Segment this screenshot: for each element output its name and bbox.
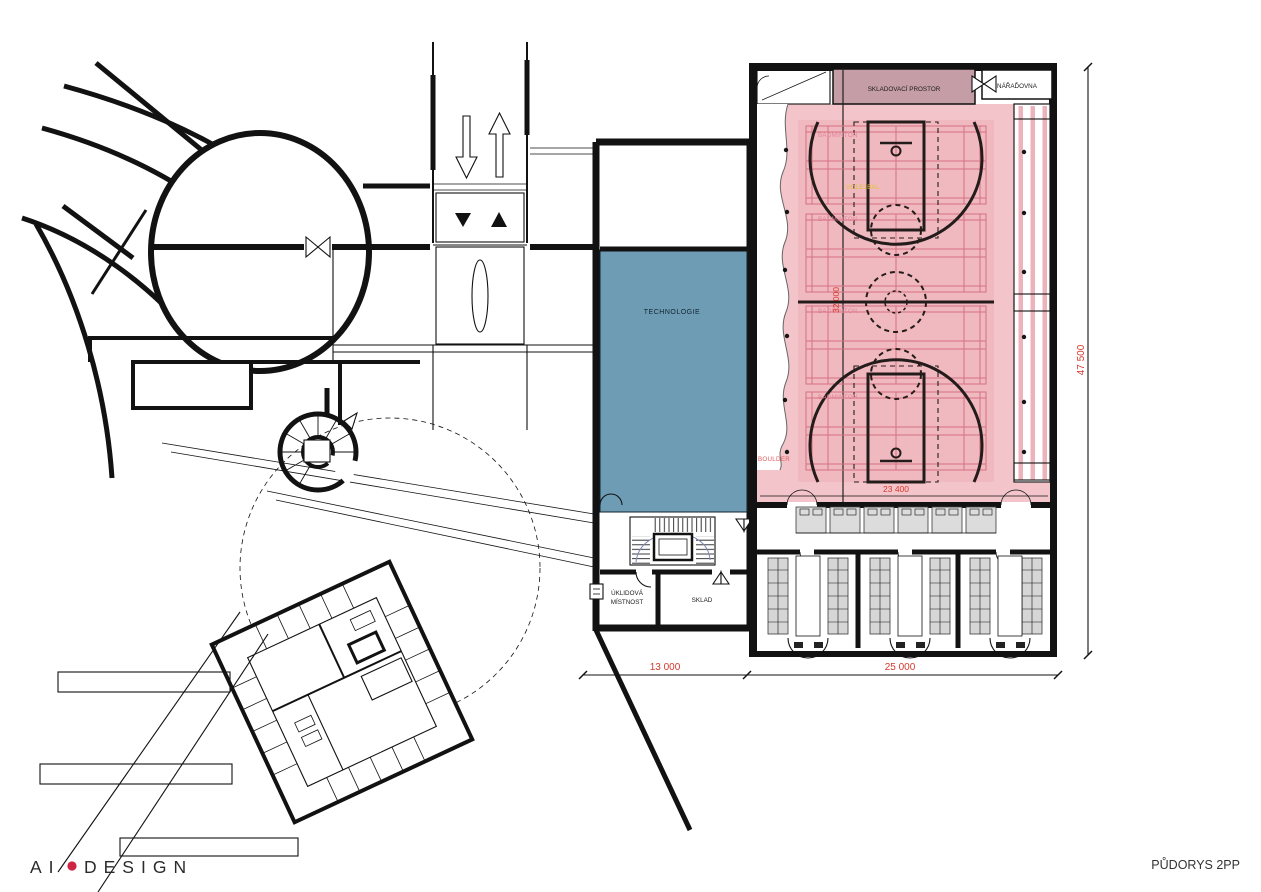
existing-building-linework — [22, 63, 690, 892]
title-block: AI DESIGN PŮDORYS 2PP — [30, 857, 1240, 877]
island-fixture — [472, 260, 488, 332]
round-hall — [151, 133, 369, 371]
sklad-label: SKLAD — [692, 597, 713, 604]
badminton-label-4: BADMINTON — [818, 394, 858, 401]
tribunes — [1014, 104, 1050, 482]
site-wall — [63, 206, 133, 258]
dim-hall-inner: 32 000 — [831, 287, 841, 313]
leader-line — [276, 500, 594, 567]
logo-dot — [67, 861, 76, 870]
site-line — [58, 612, 240, 872]
rotated-building — [212, 562, 472, 822]
site-line — [98, 634, 268, 892]
floor-plan-page: TECHNOLOGIE ÚKLIDOVÁ MÍSTNOST SKLAD — [0, 0, 1261, 892]
dim-span-left: 13 000 — [650, 662, 681, 673]
floor-plan-canvas: TECHNOLOGIE ÚKLIDOVÁ MÍSTNOST SKLAD — [0, 0, 1261, 892]
wall-fixture — [590, 584, 603, 599]
dim-height-total: 47 500 — [1076, 344, 1087, 375]
uklidova-label-line2: MÍSTNOST — [611, 597, 644, 606]
lift-shaft — [654, 534, 692, 560]
site-wall — [596, 630, 690, 830]
tech-stair — [630, 517, 715, 565]
dim-court-width: 23 400 — [883, 484, 909, 494]
site-room — [133, 362, 251, 408]
walkway — [58, 672, 230, 692]
storage-room-label: SKLADOVACÍ PROSTOR — [868, 84, 941, 93]
walkway — [120, 838, 298, 856]
logo-text-a: AI — [30, 857, 61, 877]
leader-line — [162, 443, 594, 514]
badminton-label-1: BADMINTON — [818, 132, 858, 139]
logo-text-b: DESIGN — [84, 857, 193, 877]
dim-span-hall: 25 000 — [885, 662, 916, 673]
walkway — [40, 764, 232, 784]
technologie-label: TECHNOLOGIE — [644, 309, 700, 316]
uklidova-label-line1: ÚKLIDOVÁ — [611, 588, 644, 597]
badminton-label-2: BADMINTON — [818, 216, 858, 223]
boulder-label: BOULDER — [758, 456, 790, 463]
leader-line — [171, 452, 594, 523]
technologie-room — [600, 250, 747, 512]
central-corridor — [333, 40, 594, 430]
spiral-stair — [280, 388, 360, 490]
boulder-wall — [757, 104, 789, 470]
leader-line — [267, 491, 594, 558]
site-arc — [36, 224, 112, 478]
technologie-block: TECHNOLOGIE ÚKLIDOVÁ MÍSTNOST SKLAD — [590, 139, 753, 631]
tool-room-label: NÁŘAĎOVNA — [997, 81, 1038, 90]
drawing-title: PŮDORYS 2PP — [1151, 857, 1240, 872]
sports-hall: SKLADOVACÍ PROSTOR NÁŘAĎOVNA BOULDER — [753, 67, 1053, 658]
changing-rooms — [757, 490, 1050, 658]
volejbal-label: VOLEJBAL — [846, 184, 880, 191]
